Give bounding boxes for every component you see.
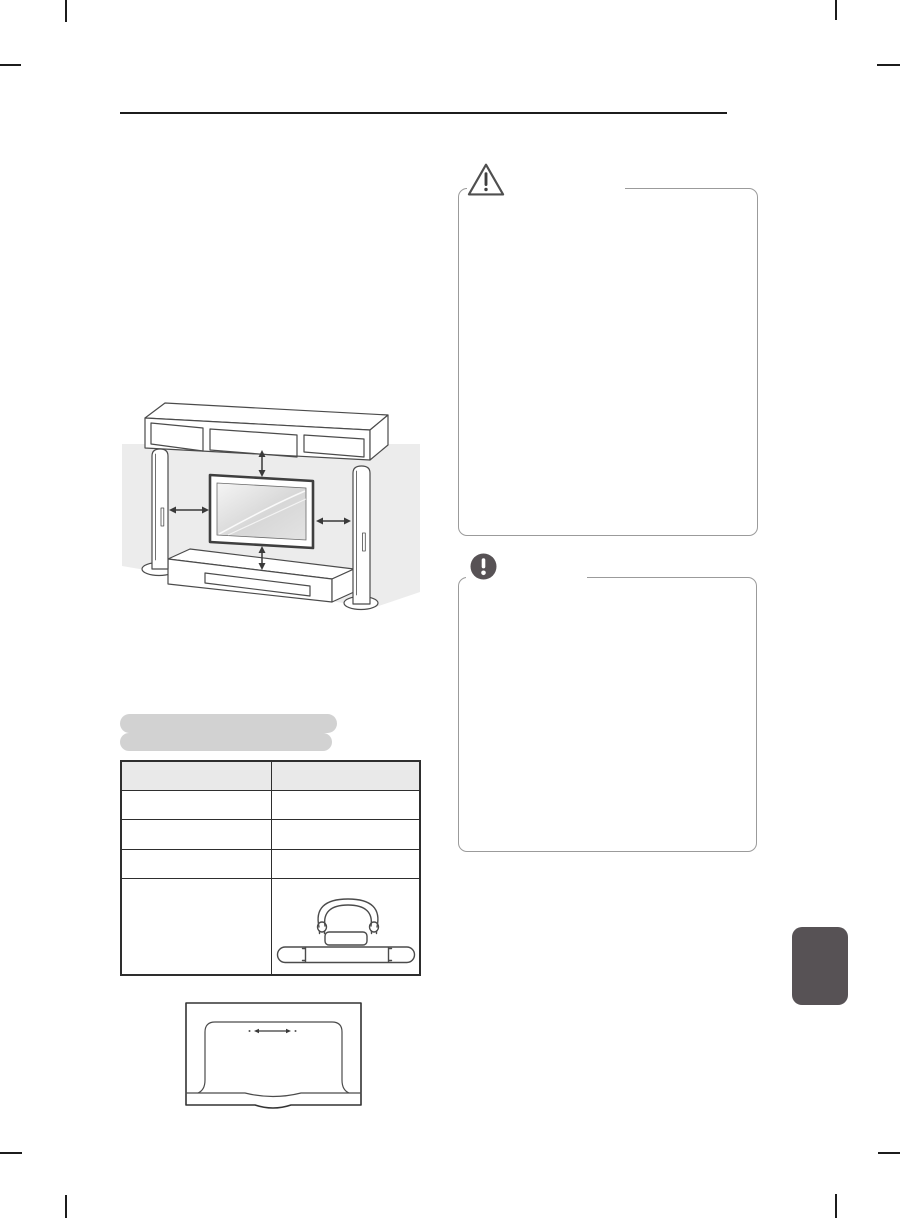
crop-mark-top-right-h — [877, 64, 900, 66]
table-header-cell-2 — [272, 762, 419, 790]
television — [210, 475, 313, 548]
slide-arrow — [249, 1029, 297, 1033]
chapter-side-tab — [792, 927, 848, 1005]
crop-mark-bottom-right-h — [878, 1152, 900, 1154]
left-speaker — [152, 449, 168, 569]
crop-mark-bottom-left-v — [65, 1195, 67, 1218]
spec-table — [120, 760, 421, 976]
table-row — [122, 850, 419, 879]
table-cell — [272, 850, 419, 878]
crop-mark-bottom-right-v — [835, 1194, 837, 1218]
redacted-heading-line-1 — [120, 714, 337, 733]
redacted-heading-line-2 — [120, 733, 332, 751]
section-header-rule — [120, 112, 727, 114]
crop-mark-top-left-v — [65, 0, 67, 22]
table-row — [122, 820, 419, 850]
right-speaker — [353, 466, 370, 604]
tv-back-illustration — [185, 1002, 362, 1109]
table-cell — [272, 820, 419, 849]
manual-page — [0, 0, 900, 1218]
table-cell — [272, 791, 419, 819]
note-panel — [458, 577, 757, 852]
table-row — [122, 791, 419, 820]
table-cell — [122, 791, 272, 819]
table-cell — [122, 820, 272, 849]
table-header-cell-1 — [122, 762, 272, 790]
table-cell — [122, 850, 272, 878]
table-header-row — [122, 762, 419, 791]
table-row — [122, 879, 419, 974]
caution-panel — [458, 188, 758, 536]
stand-parts-illustration — [275, 886, 417, 968]
crop-mark-top-left-h — [0, 64, 21, 66]
crop-mark-top-right-v — [835, 0, 837, 20]
table-cell-stand-illustration — [272, 879, 419, 974]
table-cell — [122, 879, 272, 974]
warning-triangle-icon — [466, 162, 506, 198]
tv-placement-diagram — [112, 388, 427, 626]
crop-mark-bottom-left-h — [0, 1152, 22, 1154]
exclamation-circle-icon — [470, 553, 497, 580]
